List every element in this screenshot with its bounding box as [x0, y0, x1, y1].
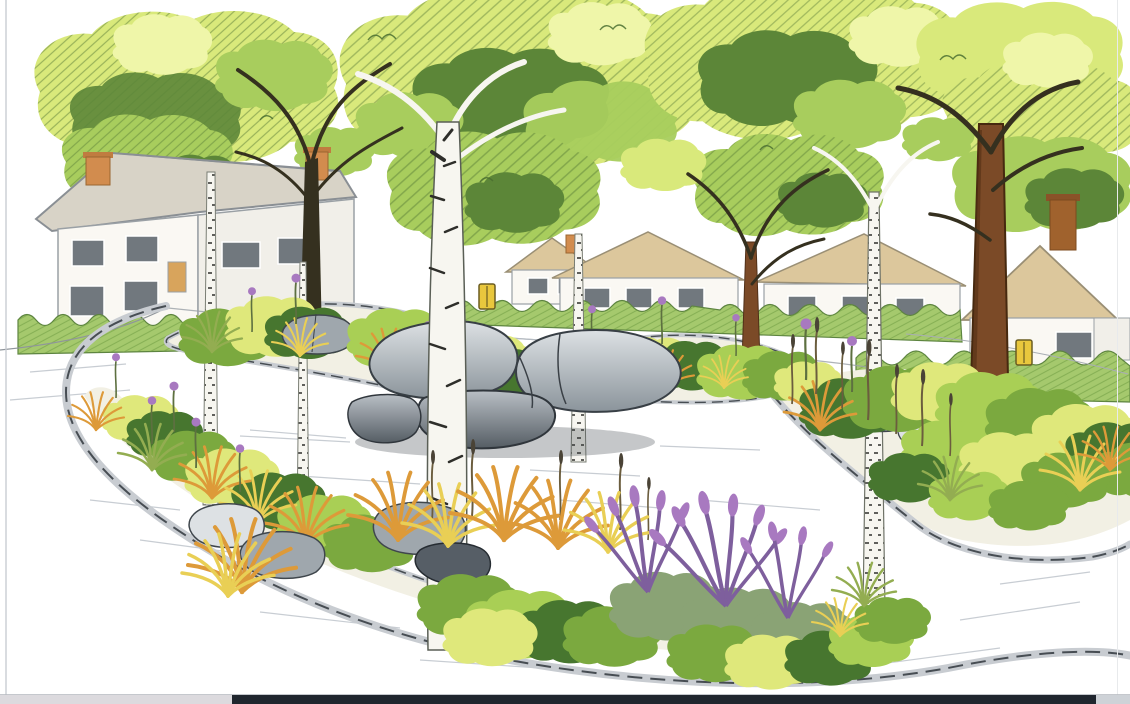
grit-bin-right: [1016, 340, 1032, 365]
illustration-page: [0, 0, 1130, 704]
bottom-bar-right-segment: [1096, 695, 1130, 704]
bottom-bar-dark-segment[interactable]: [232, 695, 1096, 704]
grit-bin-left: [479, 284, 495, 309]
bottom-window-bar: [0, 694, 1130, 704]
illustration-canvas: [0, 0, 1130, 704]
